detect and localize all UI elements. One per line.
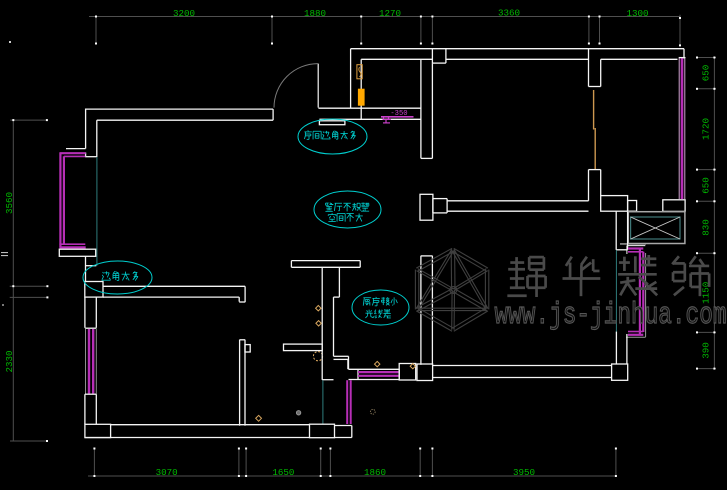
svg-text:1880: 1880 [304, 8, 326, 19]
svg-text:1650: 1650 [272, 467, 294, 478]
svg-text:1270: 1270 [379, 8, 401, 19]
svg-text:1860: 1860 [364, 467, 386, 478]
svg-text:3200: 3200 [173, 8, 195, 19]
svg-text:650: 650 [701, 65, 712, 82]
svg-text:3360: 3360 [498, 8, 520, 19]
svg-text:830: 830 [701, 219, 712, 236]
svg-text:1720: 1720 [701, 118, 712, 140]
svg-text:1300: 1300 [626, 8, 648, 19]
svg-text:3070: 3070 [156, 467, 178, 478]
svg-text:650: 650 [701, 177, 712, 194]
svg-text:3950: 3950 [513, 467, 535, 478]
svg-text:390: 390 [701, 342, 712, 359]
svg-text:www.js-jinhua.com: www.js-jinhua.com [495, 299, 727, 333]
svg-text:3560: 3560 [4, 192, 15, 214]
svg-text:2330: 2330 [4, 350, 15, 372]
